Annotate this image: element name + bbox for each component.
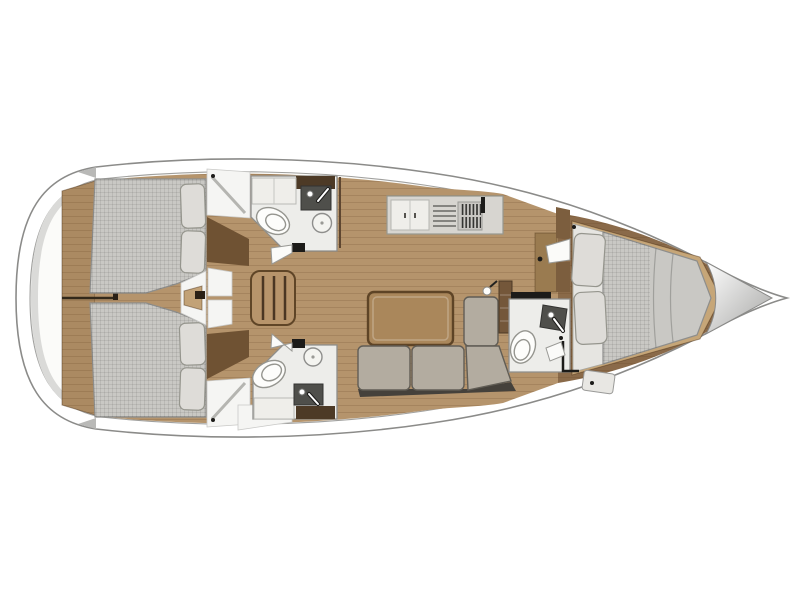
head-port-shower-drain [307, 191, 313, 197]
vberth-texture [603, 232, 650, 364]
forward-bulkhead-upper [556, 207, 570, 240]
head-forward-top-frame [511, 292, 551, 299]
port-berth-pillow-2 [180, 231, 205, 274]
galley-faucet [481, 197, 485, 213]
galley-cabinet-handle-2 [414, 213, 416, 218]
forward-bulkhead-lower [556, 262, 570, 292]
companionway-side-starboard [208, 300, 232, 328]
head-forward-door-handle [559, 336, 563, 340]
starboard-berth-pillow-1 [179, 323, 205, 366]
floorplan-canvas [0, 0, 800, 600]
bow [706, 262, 772, 334]
companionway-side-port [208, 268, 232, 296]
head-starboard-sink-drain [311, 355, 314, 358]
salon-lamp-knob [483, 287, 491, 295]
companionway-step-edge [195, 291, 205, 299]
salon-table [368, 292, 453, 345]
vberth-pillow-2 [574, 291, 608, 345]
head-forward-sink-drain [548, 312, 554, 318]
sofa-cushion-2 [412, 346, 464, 390]
forward-cabin-door-hinge [572, 225, 576, 229]
forward-bench-latch [590, 381, 594, 385]
head-port-door-frame [292, 243, 305, 252]
nav-cabinet-handle [538, 257, 543, 262]
galley [387, 196, 503, 234]
sofa-corner-cushion [464, 297, 498, 346]
head-forward [506, 292, 579, 372]
port-berth-pillow-1 [180, 184, 206, 229]
bow-anchor-locker [706, 262, 772, 334]
vberth-pillow-1 [571, 233, 606, 287]
starboard-cabin-door-handle [211, 418, 215, 422]
head-starboard-bottom-shelf [296, 406, 335, 419]
galley-stove-grill-bottom [460, 217, 481, 228]
starboard-berth-pillow-2 [179, 368, 205, 411]
sofa-cushion-1 [358, 346, 410, 390]
head-port-sink-drain [320, 221, 323, 224]
galley-cabinet-handle-1 [404, 213, 406, 218]
galley-stove-grill-top [460, 204, 481, 215]
forward-cabin-bench [582, 370, 615, 394]
head-starboard-cabinet [254, 398, 294, 419]
yacht-floorplan-svg [0, 0, 800, 600]
head-starboard-door-frame [292, 339, 305, 348]
port-cabin-door-handle [211, 174, 215, 178]
head-starboard-shower-drain [299, 389, 305, 395]
